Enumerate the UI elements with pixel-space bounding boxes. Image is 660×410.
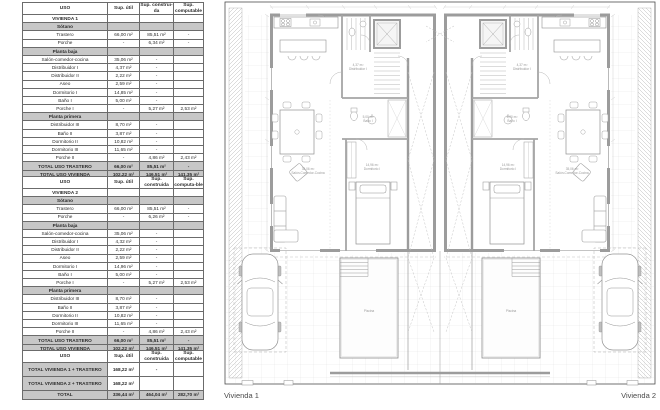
table-row: Distribuidor II2,22 m²- <box>23 246 204 254</box>
column-header: Sup. computable <box>174 351 204 363</box>
table-cell <box>174 221 204 229</box>
table-cell: 66,00 m² <box>108 336 140 345</box>
column-header: Sup. computa-ble <box>174 177 204 189</box>
table-cell: 282,70 m² <box>174 391 204 400</box>
table-cell: TOTAL VIVIENDA 1 + TRASTERO <box>23 363 108 377</box>
table-cell <box>108 113 140 121</box>
table-row: Salón-comedor-cocina35,06 m²- <box>23 229 204 237</box>
room-label: Piscina <box>506 309 517 313</box>
table-cell: Distribuidor III <box>23 295 108 303</box>
table-cell <box>174 262 204 270</box>
table-cell <box>174 311 204 319</box>
table-cell <box>174 295 204 303</box>
table-cell: - <box>140 238 174 246</box>
table-row: Porche II-4,86 m²2,43 m² <box>23 154 204 162</box>
table-cell <box>174 137 204 145</box>
table-cell: 35,06 m² <box>108 229 140 237</box>
table-cell <box>140 113 174 121</box>
table-cell: 35,06 m² <box>108 55 140 63</box>
table-cell: Dormitorio I <box>23 262 108 270</box>
table-cell: Aseo <box>23 80 108 88</box>
table-cell: 66,00 m² <box>108 31 140 39</box>
room-label: 5,00 m²Baño I <box>363 115 374 123</box>
table-cell <box>140 189 174 197</box>
table-cell <box>174 121 204 129</box>
summary-table: USOSup. útilSup. construidaSup. computab… <box>22 350 204 400</box>
table-cell <box>174 303 204 311</box>
table-cell: 2,43 m² <box>174 328 204 336</box>
table-cell <box>174 320 204 328</box>
room-label: 5,00 m²Baño I <box>507 115 518 123</box>
table-row: Dormitorio III11,65 m²- <box>23 320 204 328</box>
table-cell: Planta baja <box>23 47 108 55</box>
table-cell: 4,86 m² <box>140 328 174 336</box>
table-cell <box>174 15 204 23</box>
table-cell: Porche II <box>23 154 108 162</box>
table-row: Sótano <box>23 197 204 205</box>
table-cell: - <box>140 137 174 145</box>
table-cell <box>108 15 140 23</box>
table-cell: 14,85 m² <box>108 88 140 96</box>
table-cell <box>140 377 174 391</box>
table-cell: Baño II <box>23 129 108 137</box>
table-cell <box>140 221 174 229</box>
header-row: USOSup. útilSup. construidaSup. computa-… <box>23 177 204 189</box>
table-cell: Porche <box>23 213 108 221</box>
summary-table: USOSup. útilSup. construidaSup. computab… <box>22 350 203 400</box>
table-cell <box>174 96 204 104</box>
table-cell <box>140 15 174 23</box>
document-page: USOSup. útilSup. construi-daSup. computa… <box>0 0 660 410</box>
table-cell: Porche I <box>23 105 108 113</box>
table-row: Dormitorio II10,82 m²- <box>23 137 204 145</box>
table-cell: 4,37 m² <box>108 64 140 72</box>
table-cell <box>140 23 174 31</box>
table-row: TOTAL VIVIENDA 1 + TRASTERO168,22 m²- <box>23 363 204 377</box>
table-cell: Baño I <box>23 270 108 278</box>
table-row: Planta primera <box>23 113 204 121</box>
table-row: Trastero66,00 m²85,51 m²- <box>23 31 204 39</box>
table-cell <box>174 189 204 197</box>
table-cell <box>174 246 204 254</box>
table-row: Porche I-5,27 m²2,53 m² <box>23 279 204 287</box>
table-cell: Salón-comedor-cocina <box>23 55 108 63</box>
table-cell <box>174 88 204 96</box>
table-cell: Distribuidor II <box>23 72 108 80</box>
table-cell <box>174 229 204 237</box>
table-cell: - <box>108 279 140 287</box>
table-row: Baño I5,00 m²- <box>23 270 204 278</box>
table-cell <box>174 197 204 205</box>
table-row: Porche II-4,86 m²2,43 m² <box>23 328 204 336</box>
table-row: Dormitorio I14,85 m²- <box>23 88 204 96</box>
table-cell: 2,59 m² <box>108 254 140 262</box>
table-cell: - <box>174 162 204 171</box>
vivienda-1-table: USOSup. útilSup. construi-daSup. computa… <box>22 2 204 180</box>
table-cell: - <box>108 105 140 113</box>
table-row: Baño I5,00 m²- <box>23 96 204 104</box>
table-cell: - <box>140 246 174 254</box>
table-cell: 10,82 m² <box>108 137 140 145</box>
table-cell: 3,87 m² <box>108 129 140 137</box>
table-cell: Dormitorio II <box>23 137 108 145</box>
table-cell: 5,00 m² <box>108 270 140 278</box>
table-cell: Porche I <box>23 279 108 287</box>
table-row: VIVIENDA 2 <box>23 189 204 197</box>
table-cell: - <box>174 213 204 221</box>
table-cell: - <box>140 270 174 278</box>
table-cell: - <box>140 96 174 104</box>
table-cell: 8,70 m² <box>108 121 140 129</box>
table-row: Aseo2,59 m²- <box>23 80 204 88</box>
table-cell: Planta baja <box>23 221 108 229</box>
table-cell: - <box>174 205 204 213</box>
table-row: Sótano <box>23 23 204 31</box>
room-label: 4,37 m²Distribuidor I <box>513 63 531 71</box>
table-cell: 66,00 m² <box>108 205 140 213</box>
table-cell: Baño I <box>23 96 108 104</box>
table-cell: Planta primera <box>23 113 108 121</box>
table-cell <box>174 72 204 80</box>
table-cell <box>174 377 204 391</box>
table-row: Salón-comedor-cocina35,06 m²- <box>23 55 204 63</box>
table-cell: TOTAL <box>23 391 108 400</box>
table-cell: 168,22 m² <box>108 363 140 377</box>
table-cell: 5,27 m² <box>140 279 174 287</box>
table-row: Aseo2,59 m²- <box>23 254 204 262</box>
table-row: Planta baja <box>23 221 204 229</box>
table-cell: Distribuidor II <box>23 246 108 254</box>
table-cell <box>174 363 204 377</box>
table-row: Dormitorio III11,65 m²- <box>23 146 204 154</box>
table-row: TOTAL VIVIENDA 2 + TRASTERO168,22 m² <box>23 377 204 391</box>
column-header: Sup. construida <box>140 177 174 189</box>
table-cell <box>174 80 204 88</box>
table-row: Dormitorio I14,96 m²- <box>23 262 204 270</box>
table-cell <box>108 23 140 31</box>
table-row: Planta primera <box>23 287 204 295</box>
column-header: USO <box>23 177 108 189</box>
table-cell: - <box>140 55 174 63</box>
table-cell: TOTAL USO TRASTERO <box>23 162 108 171</box>
table-cell: - <box>140 129 174 137</box>
table-cell: 2,59 m² <box>108 80 140 88</box>
table-cell: - <box>140 311 174 319</box>
table-cell <box>174 254 204 262</box>
column-header: Sup. computable <box>174 3 204 15</box>
table-cell: 2,22 m² <box>108 72 140 80</box>
table-cell: 66,00 m² <box>108 162 140 171</box>
table-cell: Baño II <box>23 303 108 311</box>
vivienda-2-table: USOSup. útilSup. construidaSup. computa-… <box>22 176 204 354</box>
table-cell: Planta primera <box>23 287 108 295</box>
table-row: Baño II3,87 m²- <box>23 129 204 137</box>
table-cell: 336,44 m² <box>108 391 140 400</box>
vivienda-1-label: Vivienda 1 <box>224 391 259 400</box>
table-cell: 3,87 m² <box>108 303 140 311</box>
table-row: Porche I-5,27 m²2,53 m² <box>23 105 204 113</box>
table-cell: - <box>108 213 140 221</box>
table-cell: - <box>140 80 174 88</box>
table-row: TOTAL336,44 m²464,04 m²282,70 m² <box>23 391 204 400</box>
column-header: Sup. construida <box>140 351 174 363</box>
table-row: Distribuidor III8,70 m²- <box>23 295 204 303</box>
table-cell: Dormitorio III <box>23 146 108 154</box>
table-cell: Porche <box>23 39 108 47</box>
table-cell: - <box>140 64 174 72</box>
table-cell <box>108 47 140 55</box>
table-cell <box>174 47 204 55</box>
table-row: Distribuidor I4,37 m²- <box>23 64 204 72</box>
table-cell: Distribuidor I <box>23 64 108 72</box>
table-cell: TOTAL VIVIENDA 2 + TRASTERO <box>23 377 108 391</box>
table-cell <box>174 113 204 121</box>
table-row: Porche-6,34 m²- <box>23 39 204 47</box>
table-cell: 6,26 m² <box>140 213 174 221</box>
table-cell: Dormitorio I <box>23 88 108 96</box>
table-cell <box>174 129 204 137</box>
table-cell: 6,34 m² <box>140 39 174 47</box>
table-cell: - <box>140 295 174 303</box>
table-cell: 5,27 m² <box>140 105 174 113</box>
table-cell: - <box>108 328 140 336</box>
table-row: Distribuidor III8,70 m²- <box>23 121 204 129</box>
column-header: Sup. útil <box>108 351 140 363</box>
table-cell: Dormitorio II <box>23 311 108 319</box>
table-cell <box>140 47 174 55</box>
table-cell <box>174 270 204 278</box>
table-cell <box>174 23 204 31</box>
table-row: TOTAL USO TRASTERO66,00 m²85,51 m²- <box>23 162 204 171</box>
header-row: USOSup. útilSup. construidaSup. computab… <box>23 351 204 363</box>
table-row: Porche-6,26 m²- <box>23 213 204 221</box>
table-cell: Trastero <box>23 205 108 213</box>
table-cell: - <box>140 303 174 311</box>
table-cell: - <box>140 88 174 96</box>
table-cell <box>174 55 204 63</box>
table-cell: Porche II <box>23 328 108 336</box>
table-cell: Aseo <box>23 254 108 262</box>
column-header: Sup. construi-da <box>140 3 174 15</box>
vivienda-2-table: USOSup. útilSup. construidaSup. computa-… <box>22 176 203 354</box>
table-cell: 85,51 m² <box>140 31 174 39</box>
table-cell: - <box>108 39 140 47</box>
table-cell: TOTAL USO TRASTERO <box>23 336 108 345</box>
table-cell: Sótano <box>23 197 108 205</box>
table-cell: 14,96 m² <box>108 262 140 270</box>
table-cell: - <box>140 72 174 80</box>
table-cell: 85,51 m² <box>140 205 174 213</box>
table-cell: 11,65 m² <box>108 146 140 154</box>
table-cell: - <box>140 229 174 237</box>
table-cell: 2,43 m² <box>174 154 204 162</box>
table-cell <box>108 287 140 295</box>
table-row: Distribuidor II2,22 m²- <box>23 72 204 80</box>
table-cell <box>140 197 174 205</box>
column-header: Sup. útil <box>108 3 140 15</box>
table-cell <box>108 197 140 205</box>
table-cell: Distribuidor I <box>23 238 108 246</box>
table-cell: 5,00 m² <box>108 96 140 104</box>
table-cell: 2,53 m² <box>174 279 204 287</box>
table-cell: - <box>140 254 174 262</box>
table-cell: Salón-comedor-cocina <box>23 229 108 237</box>
table-cell: 4,32 m² <box>108 238 140 246</box>
table-cell: 4,86 m² <box>140 154 174 162</box>
table-cell: 168,22 m² <box>108 377 140 391</box>
table-cell <box>108 221 140 229</box>
room-label: 4,37 m²Distribuidor I <box>349 63 367 71</box>
room-label: 14,96 m²Dormitorio I <box>500 163 517 171</box>
table-cell: Distribuidor III <box>23 121 108 129</box>
table-cell: 85,51 m² <box>140 162 174 171</box>
table-cell <box>108 189 140 197</box>
table-row: Baño II3,87 m²- <box>23 303 204 311</box>
table-cell <box>174 287 204 295</box>
table-row: VIVIENDA 1 <box>23 15 204 23</box>
table-cell: 10,82 m² <box>108 311 140 319</box>
table-cell: - <box>140 262 174 270</box>
table-cell: 11,65 m² <box>108 320 140 328</box>
table-cell: Trastero <box>23 31 108 39</box>
table-cell <box>174 238 204 246</box>
table-cell: - <box>140 146 174 154</box>
floor-plan: 35,06 m²Salón-Comedor-Cocina35,06 m²Saló… <box>222 0 658 410</box>
table-cell: - <box>174 336 204 345</box>
table-row: Dormitorio II10,82 m²- <box>23 311 204 319</box>
table-row: Planta baja <box>23 47 204 55</box>
table-cell: 464,04 m² <box>140 391 174 400</box>
table-cell: Dormitorio III <box>23 320 108 328</box>
column-header: USO <box>23 3 108 15</box>
vivienda-1-table: USOSup. útilSup. construi-daSup. computa… <box>22 2 203 180</box>
table-cell: 2,53 m² <box>174 105 204 113</box>
table-cell: 8,70 m² <box>108 295 140 303</box>
table-cell: - <box>108 154 140 162</box>
table-row: TOTAL USO TRASTERO66,00 m²85,51 m²- <box>23 336 204 345</box>
table-cell: 85,51 m² <box>140 336 174 345</box>
table-row: Trastero66,00 m²85,51 m²- <box>23 205 204 213</box>
header-row: USOSup. útilSup. construi-daSup. computa… <box>23 3 204 15</box>
table-cell: - <box>174 31 204 39</box>
room-label: 14,96 m²Dormitorio I <box>364 163 381 171</box>
table-cell: Sótano <box>23 23 108 31</box>
table-cell: - <box>140 363 174 377</box>
room-label: Piscina <box>364 309 375 313</box>
vivienda-2-label: Vivienda 2 <box>621 391 656 400</box>
table-cell <box>174 64 204 72</box>
table-cell: - <box>174 39 204 47</box>
table-cell: - <box>140 320 174 328</box>
table-cell: VIVIENDA 1 <box>23 15 108 23</box>
column-header: Sup. útil <box>108 177 140 189</box>
table-cell <box>174 146 204 154</box>
column-header: USO <box>23 351 108 363</box>
table-cell <box>140 287 174 295</box>
table-cell: - <box>140 121 174 129</box>
table-cell: 2,22 m² <box>108 246 140 254</box>
table-cell: VIVIENDA 2 <box>23 189 108 197</box>
table-row: Distribuidor I4,32 m²- <box>23 238 204 246</box>
